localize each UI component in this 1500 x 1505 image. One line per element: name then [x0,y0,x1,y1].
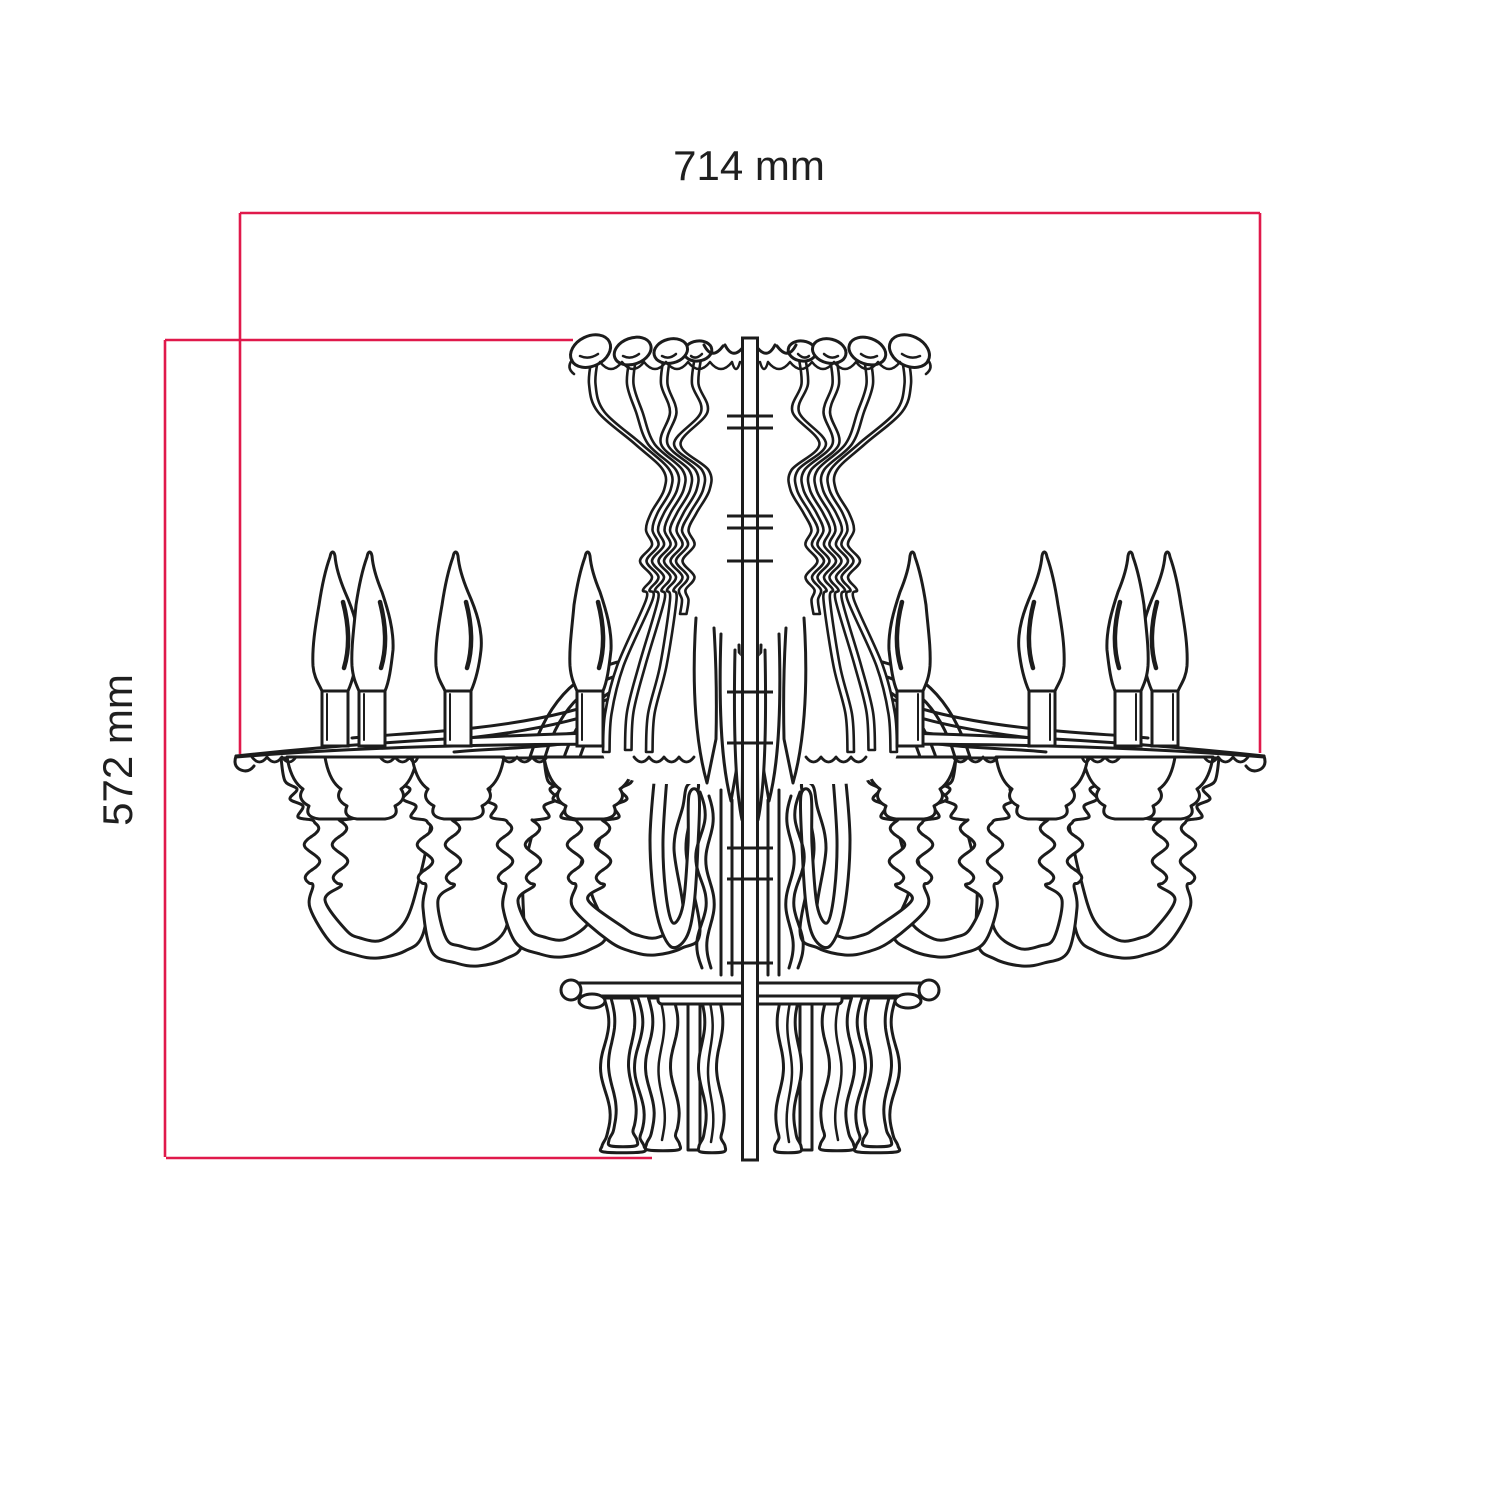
svg-text:572 mm: 572 mm [94,674,141,826]
svg-text:714 mm: 714 mm [673,142,825,189]
